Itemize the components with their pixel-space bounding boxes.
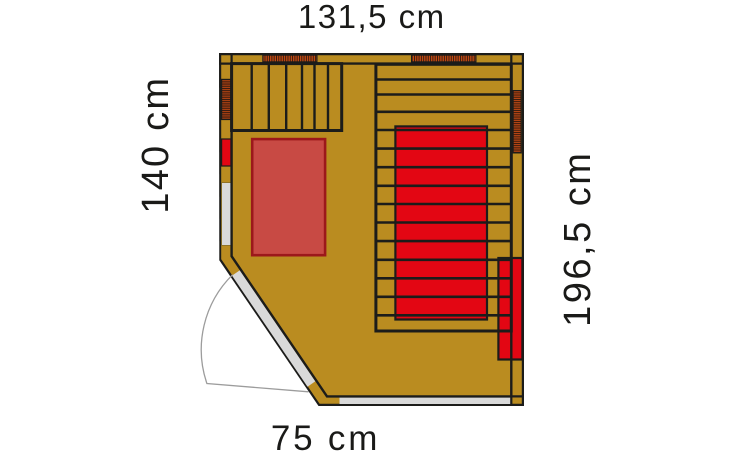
svg-text:75 cm: 75 cm — [271, 419, 380, 456]
svg-text:196,5 cm: 196,5 cm — [557, 151, 599, 327]
svg-text:140 cm: 140 cm — [135, 76, 177, 214]
svg-text:131,5 cm: 131,5 cm — [298, 0, 446, 35]
